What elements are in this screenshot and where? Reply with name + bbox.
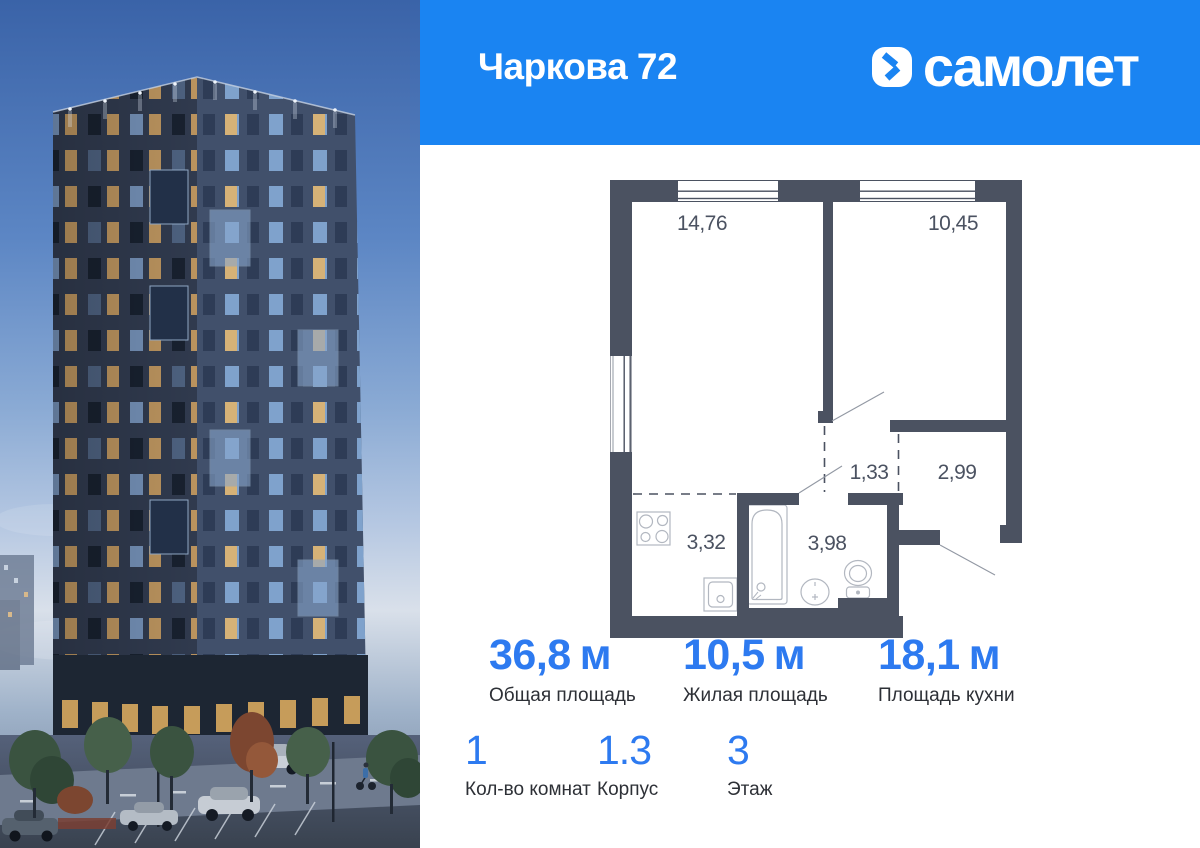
project-title: Чаркова 72	[478, 46, 677, 88]
unit-label: м	[774, 631, 805, 679]
stat-floor: 3 Этаж	[727, 730, 772, 801]
stat-kitchen-area: 18,1м Площадь кухни	[878, 634, 1015, 707]
stat-living-area-label: Жилая площадь	[683, 686, 828, 707]
header-banner: Чаркова 72 самолет	[420, 0, 1200, 145]
stat-rooms-value: 1	[465, 730, 591, 771]
stat-kitchen-area-value: 18,1м	[878, 634, 1015, 677]
room-area-bedroom: 10,45	[928, 212, 978, 235]
room-area-living: 14,76	[677, 212, 727, 235]
unit-label: м	[580, 631, 611, 679]
stat-living-area-value: 10,5м	[683, 634, 828, 677]
samolet-logo-icon	[872, 47, 912, 87]
floor-plan: 14,76 10,45 1,33 2,99 3,32 3,98	[600, 168, 1022, 638]
listing-card: Чаркова 72 самолет	[0, 0, 1200, 848]
bathtub-icon	[747, 505, 787, 604]
stat-total-area: 36,8м Общая площадь	[489, 634, 636, 707]
stat-building-label: Корпус	[597, 780, 658, 801]
room-area-kitchen: 3,32	[687, 531, 726, 554]
plan-walls	[610, 180, 1022, 638]
stat-living-area: 10,5м Жилая площадь	[683, 634, 828, 707]
room-area-bathroom: 3,98	[808, 532, 847, 555]
stat-building: 1.3 Корпус	[597, 730, 658, 801]
stat-building-value: 1.3	[597, 730, 658, 771]
stat-total-area-value: 36,8м	[489, 634, 636, 677]
kitchen-sink-icon	[704, 578, 737, 611]
room-area-entry: 2,99	[938, 461, 977, 484]
bath-sink-icon	[801, 579, 829, 605]
stat-rooms: 1 Кол-во комнат	[465, 730, 591, 801]
building-photo	[0, 0, 420, 848]
stat-total-area-label: Общая площадь	[489, 686, 636, 707]
stat-floor-label: Этаж	[727, 780, 772, 801]
plan-windows	[611, 181, 976, 452]
room-area-hallway: 1,33	[850, 461, 889, 484]
tower	[53, 77, 368, 790]
kitchen-stove-icon	[637, 512, 670, 545]
city-skyline	[0, 555, 34, 670]
stat-floor-value: 3	[727, 730, 772, 771]
info-panel: Чаркова 72 самолет	[420, 0, 1200, 848]
stat-rooms-label: Кол-во комнат	[465, 780, 591, 801]
toilet-icon	[845, 561, 872, 599]
brand-logo: самолет	[872, 39, 1138, 95]
building-illustration	[0, 0, 420, 848]
stat-kitchen-area-label: Площадь кухни	[878, 686, 1015, 707]
unit-label: м	[969, 631, 1000, 679]
brand-name: самолет	[923, 39, 1138, 95]
